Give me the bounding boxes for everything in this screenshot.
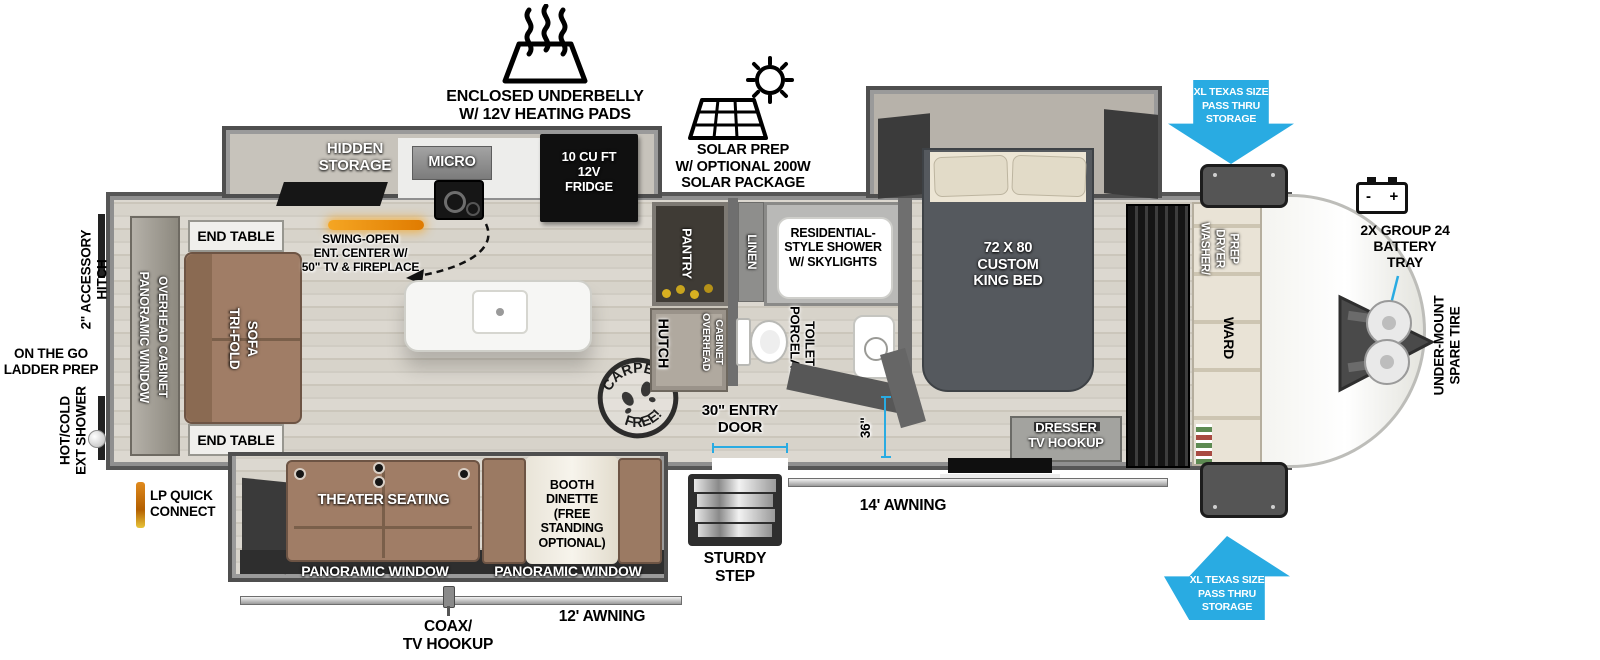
pass-thru-arrow-top: XL TEXAS SIZE PASS THRU STORAGE — [1168, 80, 1294, 164]
end-table-top: END TABLE — [188, 220, 284, 252]
ward-label: WARD — [1221, 311, 1237, 365]
cupholder-icon — [296, 470, 304, 478]
sturdy-step-label: STURDY STEP — [688, 550, 782, 586]
kitchen-island — [404, 280, 592, 352]
shower-label: RESIDENTIAL- STYLE SHOWER W/ SKYLIGHTS — [776, 226, 890, 269]
panoramic-window-label-right: PANORAMIC WINDOW — [482, 563, 654, 579]
linen-label: LINEN — [744, 217, 758, 287]
solar-prep-icon — [688, 52, 800, 142]
spare-tire-label: UNDER-MOUNT SPARE TIRE — [1431, 270, 1462, 422]
swing-open-arrow — [398, 222, 494, 286]
awning-slide-bar — [240, 596, 682, 605]
heating-pads-icon — [497, 4, 593, 86]
pass-thru-arrow-bottom: XL TEXAS SIZE PASS THRU STORAGE — [1164, 536, 1290, 620]
hidden-storage-label: HIDDEN STORAGE — [290, 140, 420, 175]
cupholder-icon — [375, 464, 383, 472]
panoramic-window-label-left: PANORAMIC WINDOW — [290, 563, 460, 579]
washer-dryer-label-line2: DRYER — [1212, 216, 1225, 282]
sofa-label-line2: SOFA — [244, 317, 260, 361]
rear-overhead-cabinet-label: OVERHEAD CABINET — [155, 238, 169, 436]
washer-dryer-label-line3: PREP — [1226, 224, 1239, 274]
rear-panoramic-window-label: PANORAMIC WINDOW — [137, 231, 151, 443]
pillow — [933, 155, 1008, 198]
dinette-label: BOOTH DINETTE (FREE STANDING OPTIONAL) — [527, 478, 617, 550]
island-sink — [472, 290, 528, 334]
cupholder-icon — [375, 478, 383, 486]
entry-door-label: 30" ENTRY DOOR — [682, 402, 798, 437]
tri-fold-sofa — [184, 252, 302, 424]
king-bed-label: 72 X 80 CUSTOM KING BED — [936, 240, 1080, 290]
entry-width-dimension-line — [884, 396, 886, 458]
dresser-label: DRESSER TV HOOKUP — [1010, 421, 1122, 451]
bedroom-window-strip — [940, 474, 1060, 478]
hutch-overhead-label-line2: CABINET — [713, 302, 725, 382]
range-hood — [276, 182, 388, 206]
fridge-label: 10 CU FT 12V FRIDGE — [540, 150, 638, 195]
bedroom-window-right — [1104, 109, 1158, 199]
pillow — [1011, 155, 1086, 198]
wardrobe-sliding-doors — [1126, 204, 1190, 468]
solar-label: SOLAR PREP W/ OPTIONAL 200W SOLAR PACKAG… — [648, 142, 838, 192]
pantry-label: PANTRY — [679, 208, 694, 298]
floorplan-canvas: ENCLOSED UNDERBELLY W/ 12V HEATING PADS … — [0, 0, 1600, 660]
underbelly-label: ENCLOSED UNDERBELLY W/ 12V HEATING PADS — [420, 88, 670, 125]
hutch-overhead-label-line1: OVERHEAD — [700, 299, 712, 385]
washer-dryer-label-line1: WASHER/ — [1197, 207, 1210, 291]
entry-door-dimension-line — [712, 446, 788, 448]
awning-main-label: 14' AWNING — [838, 497, 968, 515]
theater-seating — [286, 460, 480, 562]
entry-door-opening — [712, 458, 788, 472]
cupholder-icon — [460, 470, 468, 478]
coax-hookup-icon — [443, 586, 455, 608]
sturdy-step-icon — [688, 474, 782, 546]
coax-label: COAX/ TV HOOKUP — [388, 618, 508, 654]
awning-slide-label: 12' AWNING — [542, 608, 662, 626]
lp-quick-connect-label: LP QUICK CONNECT — [150, 488, 232, 519]
pass-thru-door-top — [1200, 164, 1288, 208]
bedroom-tv — [948, 458, 1052, 473]
hanging-clothes — [1196, 424, 1212, 464]
theater-seating-label: THEATER SEATING — [296, 492, 471, 509]
toilet — [736, 316, 790, 368]
cooktop — [434, 180, 484, 220]
dinette-bench-left — [482, 458, 526, 564]
entry-width-label: 36" — [858, 408, 874, 448]
dinette-bench-right — [618, 458, 662, 564]
hutch-label: HUTCH — [654, 311, 671, 375]
awning-main-bar — [788, 478, 1168, 487]
micro-label: MICRO — [412, 154, 492, 171]
ext-shower-label: HOT/COLD EXT SHOWER — [57, 362, 88, 500]
battery-icon: - + — [1356, 182, 1408, 214]
accessory-hitch-label: 2" ACCESSORY HITCH — [78, 212, 109, 348]
rear-trim-bottom — [98, 396, 105, 460]
pass-thru-door-bottom — [1200, 462, 1288, 518]
ext-shower-knob — [88, 430, 106, 448]
sofa-label-line1: TRI-FOLD — [226, 287, 242, 391]
lp-quick-connect-icon — [136, 482, 145, 528]
